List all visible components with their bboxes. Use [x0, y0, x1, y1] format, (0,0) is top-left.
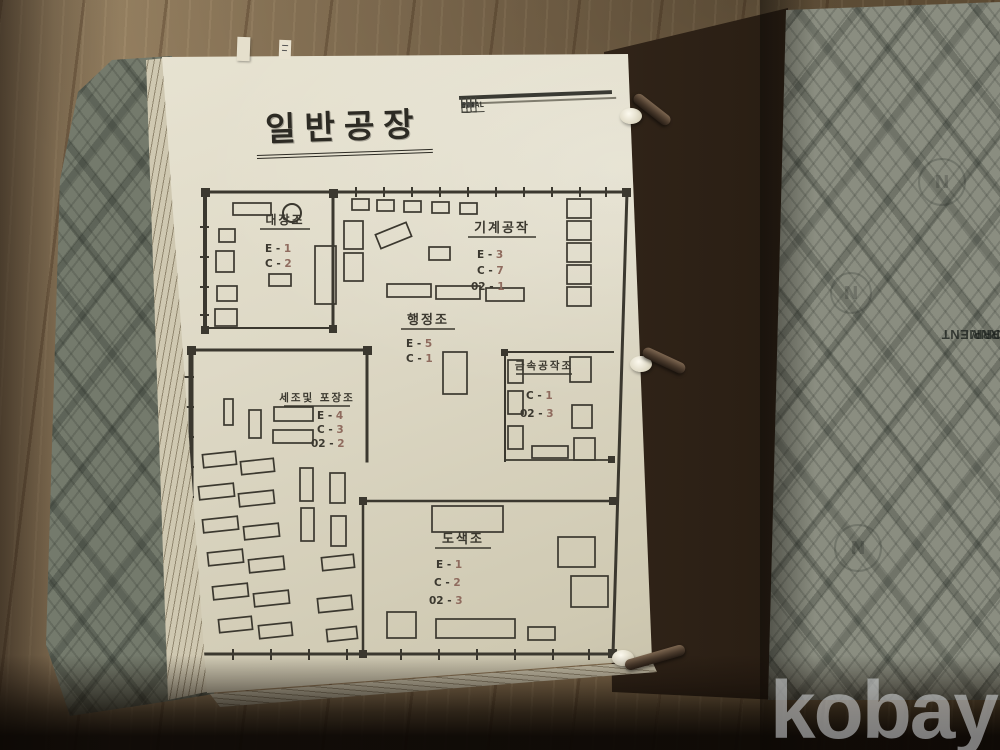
wall-tick	[439, 187, 441, 197]
furniture-rect	[269, 274, 291, 286]
column-mark	[622, 188, 631, 197]
wall-tick	[523, 187, 525, 197]
room-stat: C - 3	[317, 424, 344, 436]
room-stat: 02 - 1	[471, 281, 505, 293]
wall-tick	[200, 286, 209, 288]
furniture-rect	[198, 483, 234, 500]
column-mark	[201, 326, 209, 334]
furniture-rect	[274, 407, 313, 421]
furniture-rect	[216, 251, 234, 272]
wall-tick	[495, 187, 497, 197]
wall	[613, 192, 627, 654]
room-stat: E - 1	[436, 559, 462, 571]
furniture-rect	[248, 556, 284, 573]
furniture-rect	[567, 243, 591, 262]
furniture-rect	[387, 284, 431, 297]
column-mark	[329, 189, 338, 198]
page-tab	[237, 37, 251, 61]
room-stat: E - 1	[265, 243, 291, 255]
page-tab-marks	[279, 40, 292, 59]
photo-of-binder: N N N SE LEAF CORP. U. S. GOVERNMENT 일반공…	[0, 0, 1000, 750]
furniture-rect	[532, 446, 568, 458]
furniture-rect	[238, 490, 274, 507]
room-stat: C - 7	[477, 265, 504, 277]
room-stat: E - 4	[317, 410, 343, 422]
furniture-rect	[321, 554, 354, 570]
column-mark	[329, 325, 337, 333]
furniture-rect	[217, 286, 237, 301]
room-label: 금속공작조	[515, 359, 573, 372]
furniture-rect	[567, 221, 591, 240]
furniture-rect	[301, 508, 314, 541]
furniture-rect	[273, 430, 313, 443]
room-label: 기계공작	[474, 220, 530, 236]
furniture-rect	[249, 410, 261, 438]
column-mark	[501, 349, 508, 356]
furniture-rect	[240, 458, 274, 474]
furniture-rect	[432, 506, 503, 532]
wall-tick	[355, 187, 357, 197]
furniture-rect	[344, 221, 363, 249]
furniture-rect	[317, 595, 352, 612]
fabric-emblem: N	[918, 158, 966, 206]
room-stat: 02 - 3	[429, 595, 463, 607]
furniture-rect	[243, 523, 279, 540]
room-stat: 02 - 3	[520, 408, 554, 420]
fabric-emblem: N	[830, 272, 872, 314]
furniture-rect	[387, 612, 416, 638]
column-mark	[187, 346, 196, 355]
room-label: 세조및 포장조	[279, 391, 355, 404]
inner-cover-shade	[760, 0, 1000, 750]
furniture-rect	[202, 516, 238, 533]
furniture-rect	[224, 399, 233, 425]
column-mark	[359, 497, 367, 505]
furniture-rect	[404, 201, 421, 212]
furniture-rect	[558, 537, 595, 567]
furniture-rect	[460, 203, 477, 214]
wall-tick	[411, 187, 413, 197]
furniture-rect	[508, 426, 523, 449]
room-stat: 02 - 2	[311, 438, 345, 450]
wall-tick	[605, 187, 607, 197]
furniture-rect	[202, 451, 236, 467]
furniture-rect	[528, 627, 555, 640]
room-stat: C - 2	[434, 577, 461, 589]
wall-tick	[200, 226, 209, 228]
column-mark	[608, 456, 615, 463]
ring-hole	[620, 108, 642, 124]
furniture-rect	[432, 202, 449, 213]
wall-tick	[467, 187, 469, 197]
room-stat: C - 1	[526, 390, 553, 402]
furniture-rect	[212, 583, 248, 600]
furniture-rect	[352, 199, 369, 210]
furniture-rect	[326, 626, 357, 641]
furniture-rect	[330, 473, 345, 503]
furniture-rect	[218, 616, 252, 632]
room-stat: C - 1	[406, 353, 433, 365]
wall-tick	[383, 187, 385, 197]
wall-tick	[200, 256, 209, 258]
room-label: 행정조	[407, 312, 449, 328]
furniture-rect	[574, 438, 595, 460]
furniture-rect	[331, 516, 346, 546]
furniture-rect	[429, 247, 450, 260]
furniture-rect	[443, 352, 467, 394]
furniture-rect	[436, 619, 515, 638]
room-label: 대장조	[265, 213, 304, 227]
furniture-rect	[375, 222, 411, 248]
wall-tick	[200, 314, 209, 316]
furniture-rect	[215, 309, 237, 326]
column-mark	[363, 346, 372, 355]
column-mark	[609, 497, 617, 505]
stamp-line-government: U. S. GOVERNMENT	[941, 322, 1000, 346]
furniture-rect	[377, 200, 394, 211]
column-mark	[201, 188, 210, 197]
furniture-rect	[253, 590, 289, 607]
furniture-rect	[344, 253, 363, 281]
furniture-rect	[567, 265, 591, 284]
wall-tick	[184, 376, 194, 378]
fabric-emblem: N	[834, 524, 882, 572]
furniture-rect	[258, 622, 292, 638]
wall-tick	[551, 187, 553, 197]
furniture-rect	[207, 549, 243, 566]
furniture-rect	[300, 468, 313, 501]
wall-tick	[579, 187, 581, 197]
room-label: 도색조	[442, 532, 484, 547]
furniture-rect	[572, 405, 592, 428]
room-stat: E - 5	[406, 338, 432, 350]
furniture-rect	[219, 229, 235, 242]
furniture-rect	[571, 576, 608, 607]
room-stat: C - 2	[265, 258, 292, 270]
furniture-rect	[567, 199, 591, 218]
room-stat: E - 3	[477, 249, 503, 261]
furniture-rect	[567, 287, 591, 306]
kobay-watermark: kobay	[770, 664, 997, 750]
